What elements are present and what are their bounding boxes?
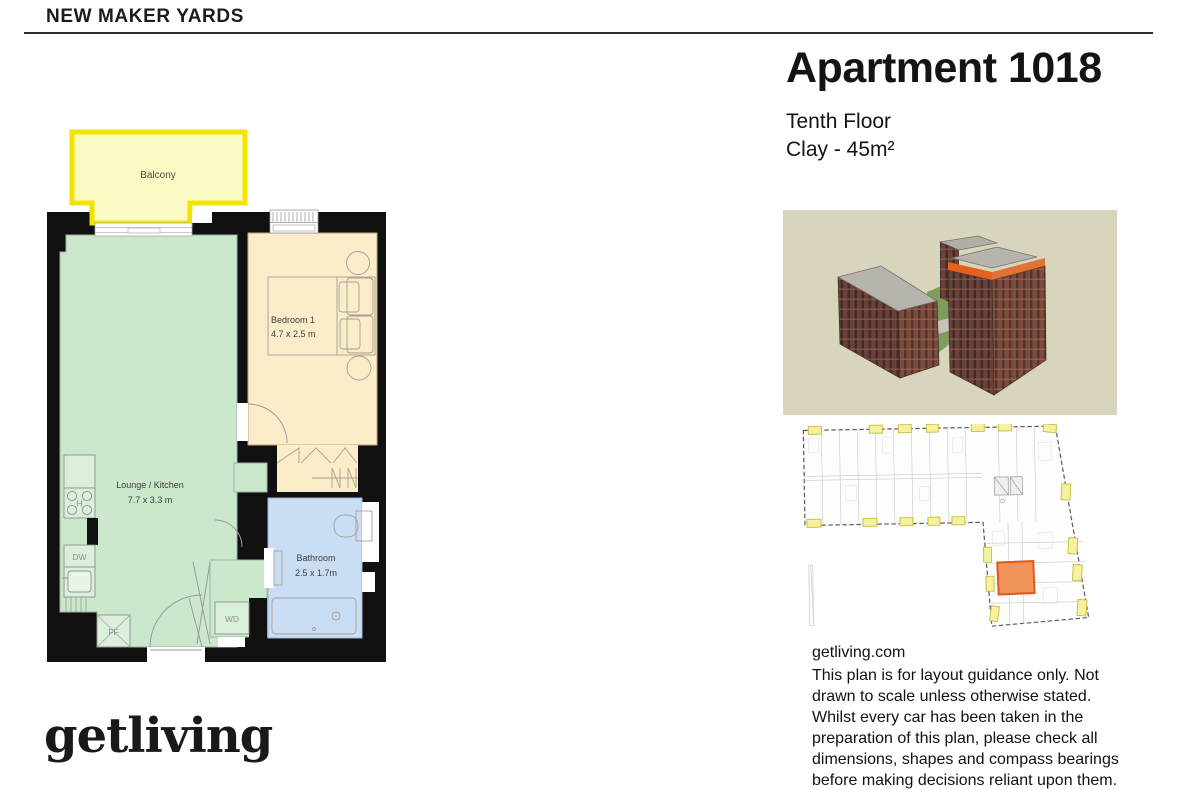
floor-plan: Balcony H: [40, 120, 392, 670]
apartment-spec-label: Clay - 45m²: [786, 138, 895, 162]
wall-patch: [249, 598, 267, 640]
hob-icon: H: [64, 488, 95, 518]
washer-dryer-label: WD: [225, 614, 239, 624]
lounge-dims: 7.7 x 3.3 m: [128, 495, 173, 505]
apartment-title: Apartment 1018: [786, 44, 1102, 93]
disclaimer-text: This plan is for layout guidance only. N…: [812, 665, 1172, 790]
wall-recess: [192, 212, 212, 223]
hall-vestibule: [234, 463, 267, 492]
hob-label: H: [76, 499, 82, 509]
bedroom-dims: 4.7 x 2.5 m: [271, 329, 316, 339]
unit-1018-highlight: [997, 561, 1034, 595]
dishwasher-label: DW: [72, 552, 86, 562]
apartment-floor-label: Tenth Floor: [786, 110, 891, 134]
floorplate-plan: [800, 424, 1092, 630]
getliving-logo: getliving: [44, 708, 272, 764]
brochure-page: NEW MAKER YARDS Apartment 1018 Tenth Flo…: [0, 0, 1177, 790]
bathroom-dims: 2.5 x 1.7m: [295, 568, 337, 578]
building-render: [783, 210, 1117, 415]
bedroom-window: [270, 210, 318, 233]
sliding-door: [95, 223, 192, 236]
website-link[interactable]: getliving.com: [812, 644, 905, 662]
bedroom-room: [248, 233, 377, 445]
floorplate-outline: [803, 426, 1088, 630]
header-rule: [24, 32, 1153, 34]
balcony-area: Balcony: [72, 132, 245, 223]
scale-bar: [809, 565, 814, 625]
balcony-label: Balcony: [140, 170, 176, 181]
bathroom-label: Bathroom: [296, 553, 335, 563]
fridge-freezer: FF: [97, 615, 130, 647]
wall-step: [87, 518, 98, 545]
cupboard-opening: [218, 637, 245, 647]
lounge-label: Lounge / Kitchen: [116, 480, 184, 490]
bedroom-label: Bedroom 1: [271, 315, 315, 325]
project-title: NEW MAKER YARDS: [46, 6, 244, 28]
fridge-label: FF: [108, 627, 118, 637]
dishwasher: DW: [64, 545, 95, 567]
kitchen-counter: [64, 455, 95, 488]
wardrobe: [277, 445, 358, 492]
service-niche-2: [362, 572, 375, 592]
entrance-opening: [147, 647, 205, 662]
